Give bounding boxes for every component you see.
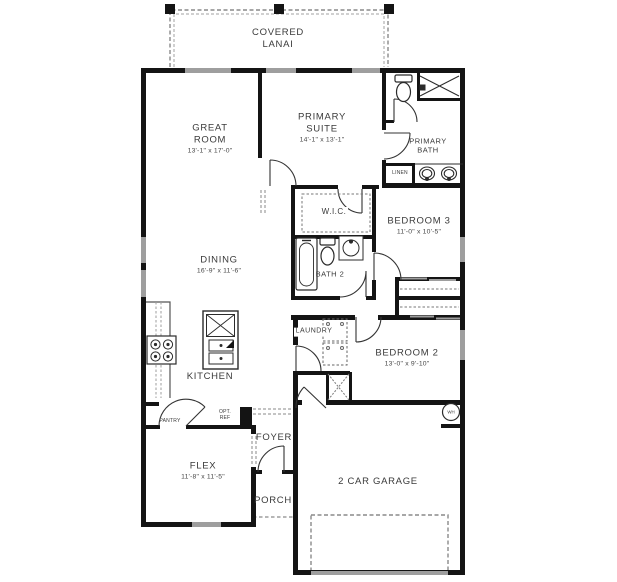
- room-name: DINING: [184, 254, 254, 266]
- room-dims: 14'-1" x 13'-1": [300, 136, 345, 144]
- room-label-bedroom-3: BEDROOM 3 11'-0" x 10'-5": [344, 215, 494, 236]
- room-label-porch: PORCH: [198, 495, 348, 507]
- room-label-dining: DINING 16'-9" x 11'-6": [144, 254, 294, 275]
- room-name: LINEN: [392, 170, 408, 176]
- cooktop-icon: [147, 336, 176, 364]
- room-name: FLEX: [163, 460, 243, 472]
- room-label-laundry: LAUNDRY: [239, 328, 389, 337]
- room-name: PORCH: [238, 495, 308, 507]
- room-name: KITCHEN: [170, 371, 250, 383]
- garage-door-outline: [311, 515, 448, 572]
- room-name: 2 CAR GARAGE: [313, 476, 443, 488]
- room-dims: 11'-0" x 10'-5": [397, 228, 441, 236]
- room-name: PRIMARY BATH: [403, 137, 453, 156]
- bath2-sink-icon: [339, 236, 363, 260]
- room-name: BEDROOM 2: [352, 347, 462, 359]
- room-label-flex: FLEX 11'-8" x 11'-5": [128, 460, 278, 481]
- room-dims: 16'-9" x 11'-6": [197, 267, 241, 275]
- room-label-linen: LINEN: [325, 170, 475, 176]
- kitchen-island-icon: [203, 311, 238, 369]
- lanai-posts: [165, 4, 394, 14]
- shower-icon: [420, 76, 459, 96]
- room-label-primary-bath: PRIMARY BATH: [353, 137, 503, 156]
- room-label-opt-ref: OPT. REF: [150, 409, 300, 422]
- room-name: FOYER: [239, 432, 309, 444]
- room-name: BEDROOM 3: [364, 215, 474, 227]
- room-label-wic: W.I.C.: [259, 207, 409, 217]
- floor-plan: COVERED LANAI GREAT ROOM 13'-1" x 17'-0"…: [0, 0, 617, 582]
- room-name: PRIMARY SUITE: [293, 111, 351, 135]
- room-label-bedroom-2: BEDROOM 2 13'-0" x 9'-10": [332, 347, 482, 368]
- room-name: W.I.C.: [320, 207, 349, 217]
- room-name: OPT. REF: [215, 409, 235, 422]
- room-label-covered-lanai: COVERED LANAI: [203, 27, 353, 51]
- room-name: WH: [447, 409, 454, 415]
- room-dims: 13'-1" x 17'-0": [188, 147, 233, 155]
- room-label-garage: 2 CAR GARAGE: [303, 476, 453, 488]
- bathtub-icon: [296, 238, 317, 290]
- room-label-kitchen: KITCHEN: [135, 371, 285, 383]
- bath2-toilet-icon: [320, 238, 335, 265]
- room-dims: 11'-8" x 11'-5": [181, 473, 225, 481]
- primary-toilet-icon: [395, 75, 412, 102]
- hall-closet-icon: [328, 374, 349, 400]
- water-heater-label: WH: [376, 409, 526, 415]
- room-name: LAUNDRY: [294, 328, 335, 337]
- room-label-foyer: FOYER: [199, 432, 349, 444]
- room-name: BATH 2: [315, 269, 345, 278]
- room-dims: 13'-0" x 9'-10": [385, 360, 430, 368]
- room-name: COVERED LANAI: [246, 27, 310, 51]
- room-name: GREAT ROOM: [187, 122, 233, 146]
